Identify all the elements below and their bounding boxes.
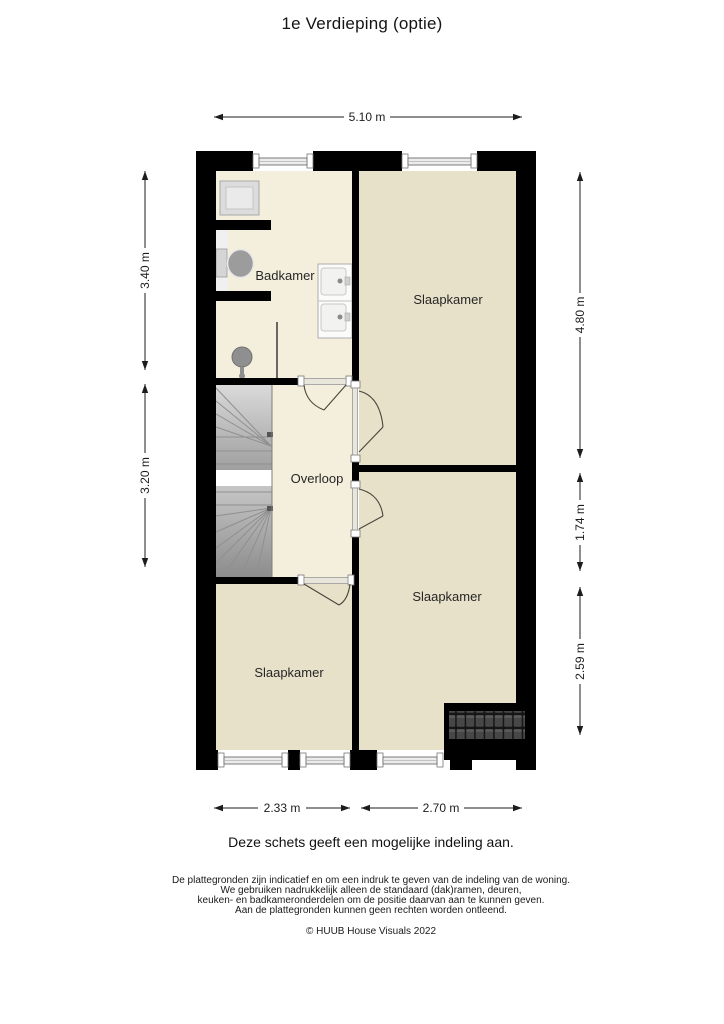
- wall-between-bedrooms: [359, 465, 516, 472]
- dimension-bottom-right: 2.70 m: [361, 801, 522, 815]
- dimension-top-width: 5.10 m: [214, 110, 522, 124]
- svg-text:2.33 m: 2.33 m: [264, 801, 301, 815]
- window-bottom-left: [218, 750, 288, 770]
- stairs-lower-flight: [216, 486, 272, 577]
- disclaimer-text: De plattegronden zijn indicatief en om e…: [18, 876, 724, 916]
- wall-right: [516, 151, 536, 770]
- label-bedroom-top-right: Slaapkamer: [413, 292, 483, 307]
- toilet: [216, 249, 254, 278]
- vanity-double-sink: [318, 264, 352, 338]
- svg-text:5.10 m: 5.10 m: [349, 110, 386, 124]
- label-bedroom-bottom-left: Slaapkamer: [254, 665, 324, 680]
- faucet: [338, 279, 343, 284]
- stairs-landing-gap: [216, 470, 272, 486]
- wall-bathroom-landing: [216, 378, 298, 385]
- faucet: [338, 315, 343, 320]
- wall-center-mid: [352, 462, 359, 481]
- copyright-notice: © HUUB House Visuals 2022: [18, 926, 724, 937]
- wall-center-lower: [352, 537, 359, 753]
- svg-text:3.40 m: 3.40 m: [138, 252, 152, 289]
- wall-landing-bedroom: [216, 577, 298, 584]
- wall-left: [196, 151, 216, 770]
- stairs-upper-flight: [216, 385, 272, 470]
- label-landing: Overloop: [291, 471, 344, 486]
- wall-stub-toilet: [216, 291, 271, 301]
- disclaimer-line: Aan de plattegronden kunnen geen rechten…: [18, 906, 724, 916]
- dimension-right-middle: 1.74 m: [573, 473, 587, 571]
- dimension-left-upper: 3.40 m: [138, 171, 152, 370]
- staircase: [216, 385, 273, 577]
- dimension-left-lower: 3.20 m: [138, 384, 152, 567]
- sketch-caption: Deze schets geeft een mogelijke indeling…: [18, 834, 724, 850]
- label-bedroom-mid-right: Slaapkamer: [412, 589, 482, 604]
- svg-text:3.20 m: 3.20 m: [138, 457, 152, 494]
- svg-text:4.80 m: 4.80 m: [573, 297, 587, 334]
- roof-tiles: [449, 711, 525, 739]
- floorplan-page: 1e Verdieping (optie): [0, 0, 724, 1024]
- wall-center-upper: [352, 171, 359, 381]
- svg-text:1.74 m: 1.74 m: [573, 504, 587, 541]
- svg-text:2.59 m: 2.59 m: [573, 643, 587, 680]
- label-bathroom: Badkamer: [255, 268, 315, 283]
- dimension-right-lower: 2.59 m: [573, 587, 587, 735]
- window-top-right: [402, 151, 477, 171]
- dimension-bottom-left: 2.33 m: [214, 801, 350, 815]
- svg-text:2.70 m: 2.70 m: [423, 801, 460, 815]
- window-bottom-middle: [300, 750, 350, 770]
- wall-stub-shower: [216, 220, 271, 230]
- window-top-left: [253, 151, 313, 171]
- shower: [220, 181, 259, 215]
- floor-plan-drawing: Badkamer Slaapkamer Overloop Slaapkamer …: [0, 0, 724, 1024]
- roof-section: [444, 703, 536, 770]
- wall-top: [196, 151, 536, 171]
- window-bottom-right: [377, 750, 443, 770]
- dimension-right-upper: 4.80 m: [573, 172, 587, 458]
